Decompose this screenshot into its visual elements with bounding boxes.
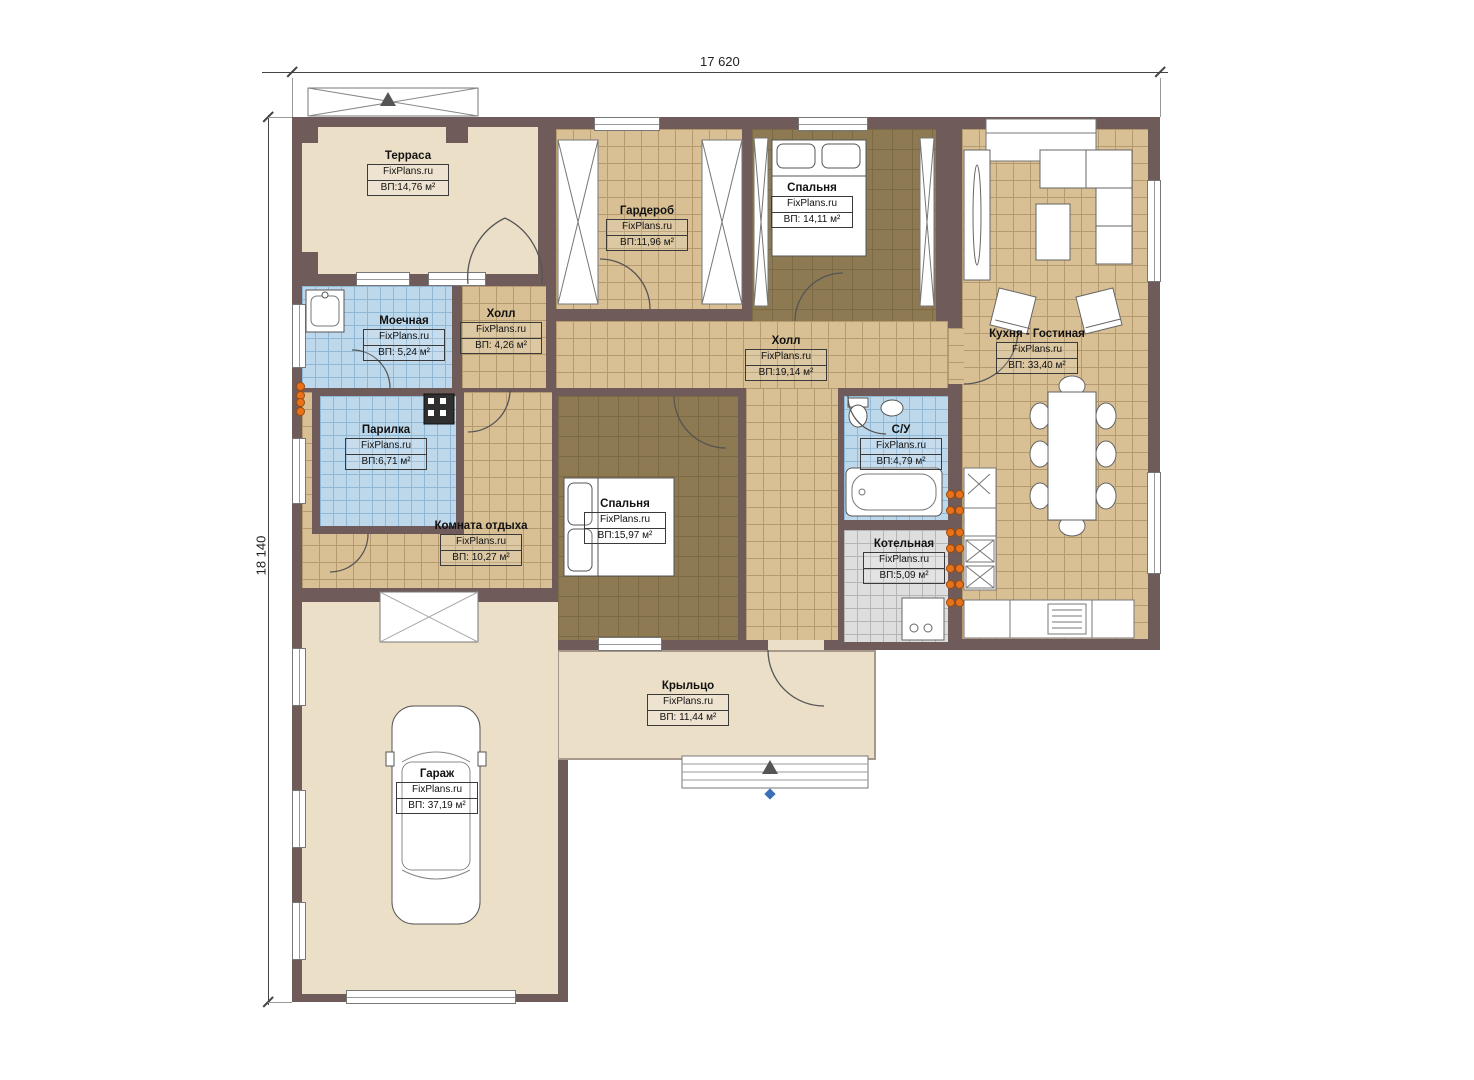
room-area: ВП:15,97 м² bbox=[585, 529, 665, 544]
brand-label: FixPlans.ru bbox=[648, 695, 728, 711]
terrace-column bbox=[296, 121, 318, 143]
room-name: Спальня bbox=[600, 498, 650, 510]
brand-label: FixPlans.ru bbox=[861, 439, 941, 455]
terrace-column bbox=[296, 252, 318, 274]
window bbox=[798, 117, 868, 131]
room-label-sauna: Парилка FixPlans.ru ВП:6,71 м² bbox=[321, 424, 451, 470]
dimension-left-label: 18 140 bbox=[254, 521, 269, 591]
room-area: ВП:6,71 м² bbox=[346, 455, 426, 470]
room-area: ВП: 4,26 м² bbox=[461, 339, 541, 354]
room-label-terrace: Терраса FixPlans.ru ВП:14,76 м² bbox=[343, 150, 473, 196]
porch-steps-icon bbox=[682, 756, 868, 800]
room-name: Кухня - Гостиная bbox=[989, 328, 1085, 340]
garage-door bbox=[346, 990, 516, 1004]
room-label-porch: Крыльцо FixPlans.ru ВП: 11,44 м² bbox=[623, 680, 753, 726]
room-area: ВП:4,79 м² bbox=[861, 455, 941, 470]
room-label-hall-small: Холл FixPlans.ru ВП: 4,26 м² bbox=[436, 308, 566, 354]
brand-label: FixPlans.ru bbox=[461, 323, 541, 339]
outlet-icon bbox=[946, 506, 955, 515]
room-name: Гардероб bbox=[620, 205, 674, 217]
room-name: Крыльцо bbox=[662, 680, 714, 692]
dimension-line-top bbox=[262, 72, 1168, 73]
window bbox=[594, 117, 660, 131]
extension-line bbox=[1160, 78, 1161, 117]
window bbox=[292, 902, 306, 960]
extension-line bbox=[268, 1002, 292, 1003]
room-label-hall-main: Холл FixPlans.ru ВП:19,14 м² bbox=[721, 335, 851, 381]
room-label-boiler: Котельная FixPlans.ru ВП:5,09 м² bbox=[839, 538, 969, 584]
window bbox=[356, 272, 410, 286]
room-name: Гараж bbox=[420, 768, 454, 780]
extension-line bbox=[268, 117, 292, 118]
room-area: ВП: 33,40 м² bbox=[997, 359, 1077, 374]
room-label-bedroom2: Спальня FixPlans.ru ВП:15,97 м² bbox=[560, 498, 690, 544]
brand-label: FixPlans.ru bbox=[607, 220, 687, 236]
window bbox=[428, 272, 486, 286]
window bbox=[292, 304, 306, 368]
room-name: С/У bbox=[892, 424, 911, 436]
window bbox=[1147, 472, 1161, 574]
window bbox=[598, 637, 662, 651]
floor-plan: 17 620 18 140 bbox=[0, 0, 1474, 1080]
room-label-bedroom1: Спальня FixPlans.ru ВП: 14,11 м² bbox=[747, 182, 877, 228]
room-area: ВП:19,14 м² bbox=[746, 366, 826, 381]
window bbox=[1147, 180, 1161, 282]
kitchen-door-opening bbox=[948, 328, 964, 384]
brand-label: FixPlans.ru bbox=[864, 553, 944, 569]
room-area: ВП: 11,44 м² bbox=[648, 711, 728, 726]
entry-steps-icon bbox=[308, 88, 478, 116]
porch-door-opening bbox=[768, 640, 824, 650]
room-name: Парилка bbox=[362, 424, 410, 436]
room-label-bathroom: С/У FixPlans.ru ВП:4,79 м² bbox=[836, 424, 966, 470]
brand-label: FixPlans.ru bbox=[364, 330, 444, 346]
room-area: ВП:11,96 м² bbox=[607, 236, 687, 251]
brand-label: FixPlans.ru bbox=[585, 513, 665, 529]
room-name: Моечная bbox=[379, 315, 428, 327]
room-name: Холл bbox=[487, 308, 516, 320]
room-area: ВП: 37,19 м² bbox=[397, 799, 477, 814]
dimension-top-label: 17 620 bbox=[700, 54, 740, 69]
room-name: Спальня bbox=[787, 182, 837, 194]
outlet-icon bbox=[296, 382, 305, 391]
brand-label: FixPlans.ru bbox=[441, 535, 521, 551]
room-label-kitchen-living: Кухня - Гостиная FixPlans.ru ВП: 33,40 м… bbox=[972, 328, 1102, 374]
room-label-wardrobe: Гардероб FixPlans.ru ВП:11,96 м² bbox=[582, 205, 712, 251]
room-area: ВП: 14,11 м² bbox=[772, 213, 852, 228]
window bbox=[292, 790, 306, 848]
room-name: Котельная bbox=[874, 538, 934, 550]
brand-label: FixPlans.ru bbox=[746, 350, 826, 366]
room-area: ВП: 5,24 м² bbox=[364, 346, 444, 361]
room-area: ВП:14,76 м² bbox=[368, 181, 448, 196]
outlet-icon bbox=[946, 528, 955, 537]
room-name: Холл bbox=[772, 335, 801, 347]
brand-label: FixPlans.ru bbox=[368, 165, 448, 181]
brand-label: FixPlans.ru bbox=[346, 439, 426, 455]
window bbox=[292, 438, 306, 504]
brand-label: FixPlans.ru bbox=[397, 783, 477, 799]
brand-label: FixPlans.ru bbox=[772, 197, 852, 213]
outlet-icon bbox=[946, 490, 955, 499]
outlet-icon bbox=[296, 398, 305, 407]
outlet-icon bbox=[946, 598, 955, 607]
brand-label: FixPlans.ru bbox=[997, 343, 1077, 359]
room-area: ВП: 10,27 м² bbox=[441, 551, 521, 566]
hall-main-floor-south bbox=[746, 388, 838, 640]
room-label-garage: Гараж FixPlans.ru ВП: 37,19 м² bbox=[372, 768, 502, 814]
extension-line bbox=[292, 78, 293, 117]
room-area: ВП:5,09 м² bbox=[864, 569, 944, 584]
terrace-column bbox=[446, 121, 468, 143]
room-name: Комната отдыха bbox=[434, 520, 527, 532]
kitchen-living-floor bbox=[962, 129, 1148, 639]
room-label-rest-room: Комната отдыха FixPlans.ru ВП: 10,27 м² bbox=[416, 520, 546, 566]
window bbox=[292, 648, 306, 706]
room-name: Терраса bbox=[385, 150, 431, 162]
